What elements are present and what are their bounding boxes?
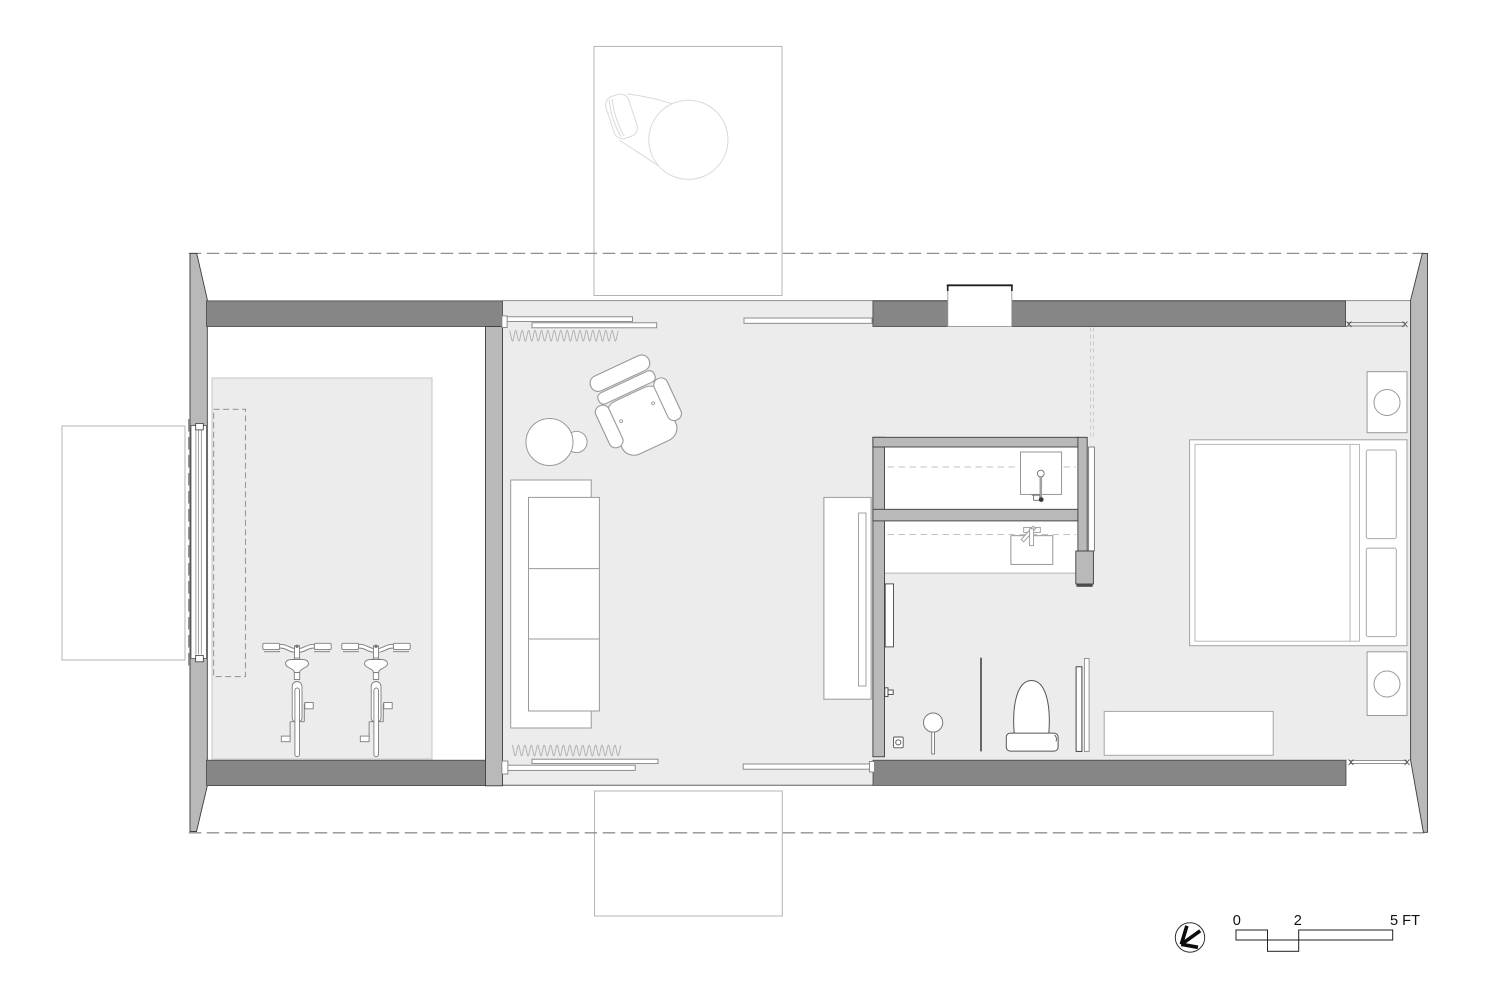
svg-text:5 FT: 5 FT xyxy=(1390,913,1420,929)
svg-text:2: 2 xyxy=(1294,913,1302,929)
svg-text:0: 0 xyxy=(1233,913,1241,929)
